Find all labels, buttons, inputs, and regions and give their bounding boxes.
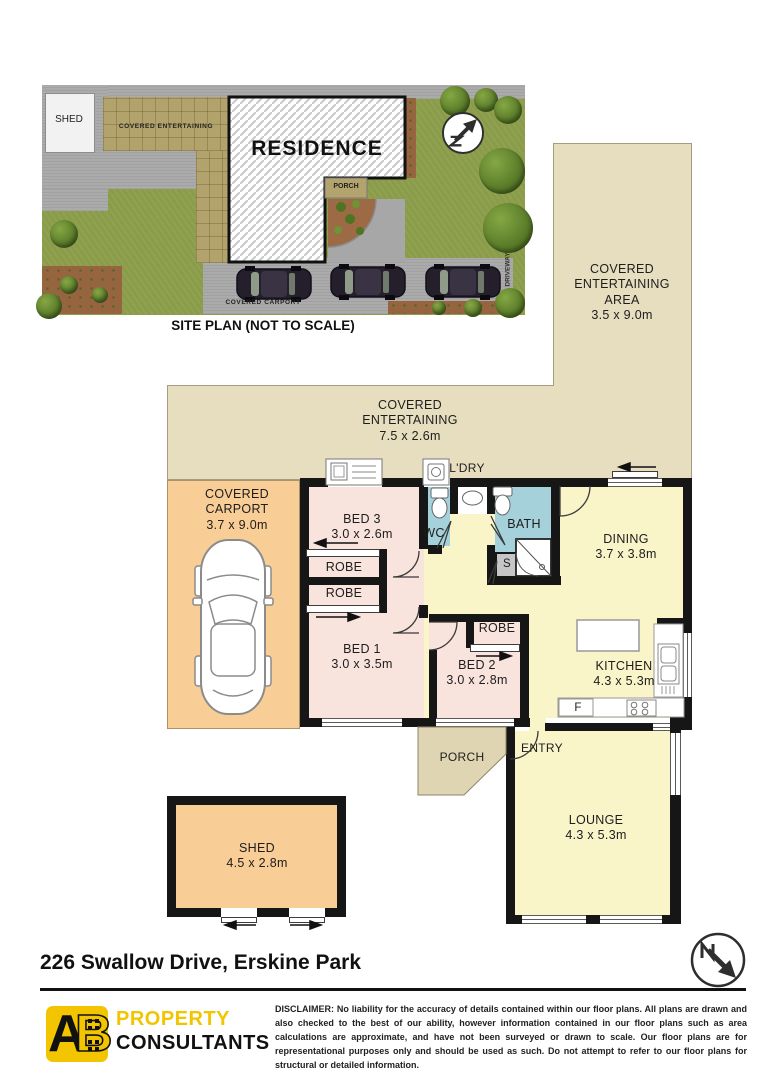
logo-text-property: PROPERTY [116,1008,230,1031]
robe-sliding-door [470,644,520,652]
logo-letter-b: B [75,1004,113,1064]
shed-door-opening [289,908,325,917]
room-label-laundry: L'DRY [437,461,497,476]
wall [545,723,653,731]
tree-icon [494,96,522,124]
wall-opening [424,478,450,487]
wall [487,545,495,578]
basin-nook-floor [458,486,487,514]
site-porch-label: PORCH [322,183,370,190]
room-label-covered-entertaining-area: COVERED ENTERTAINING AREA 3.5 x 9.0m [562,262,682,323]
room-label-store: S [497,557,517,571]
window [600,915,662,924]
room-label-fridge: F [570,701,586,715]
wall [657,618,683,630]
window [436,718,514,727]
disclaimer-text: DISCLAIMER: No liability for the accurac… [275,1002,747,1072]
site-covered-entertaining-label: COVERED ENTERTAINING [106,123,226,130]
wall [487,576,561,585]
room-label-dining: DINING 3.7 x 3.8m [566,532,686,563]
wall [670,716,692,730]
site-garden-strip-right [405,98,416,178]
shed-door-opening [221,908,257,917]
wall [379,549,387,613]
room-label-covered-carport: COVERED CARPORT 3.7 x 9.0m [177,487,297,533]
floorplan-page: SHED COVERED ENTERTAINING RESIDENCE PORC… [0,0,770,1080]
window [683,633,692,697]
logo-text-consultants: CONSULTANTS [116,1032,270,1055]
window [522,915,586,924]
room-label-kitchen: KITCHEN 4.3 x 5.3m [564,659,684,690]
room-label-bed1: BED 1 3.0 x 3.5m [312,642,412,673]
site-shed-label: SHED [44,114,94,125]
room-label-robe-bed2: ROBE [467,621,527,636]
room-label-lounge: LOUNGE 4.3 x 5.3m [536,813,656,844]
robe-sliding-door [306,605,380,613]
site-residence-label: RESIDENCE [237,137,397,161]
shed-sliding-door [221,917,257,923]
tree-icon [432,301,446,315]
wall [487,486,495,514]
footer-divider [40,988,746,991]
wall [300,478,309,727]
window [322,718,402,727]
window [670,733,681,795]
sliding-door [608,478,662,487]
room-label-covered-entertaining: COVERED ENTERTAINING 7.5 x 2.6m [340,398,480,444]
tree-icon [440,86,470,116]
shed-sliding-door [289,917,325,923]
room-label-bath: BATH [494,517,554,532]
wall [304,577,387,585]
property-address: 226 Swallow Drive, Erskine Park [40,951,361,975]
room-label-robe-top: ROBE [309,560,379,575]
entry-passage-floor [529,718,546,732]
room-label-bed2: BED 2 3.0 x 2.8m [427,658,527,689]
room-label-shed: SHED 4.5 x 2.8m [197,841,317,872]
tree-icon [92,287,108,303]
tree-icon [479,148,525,194]
tree-icon [50,220,78,248]
room-label-robe-bottom: ROBE [309,586,379,601]
north-arrow-icon [692,934,744,986]
tree-icon [36,293,62,319]
site-plan-caption: SITE PLAN (NOT TO SCALE) [143,318,383,333]
wall [428,545,442,554]
logo-window-dots [88,1019,92,1023]
room-label-entry: ENTRY [507,741,577,756]
tree-icon [464,299,482,317]
window [653,723,670,731]
site-garden-bed-bottom-right [388,301,510,314]
wall [551,486,560,584]
agency-logo: A B [46,1006,108,1062]
room-label-porch: PORCH [427,750,497,765]
wall-opening [328,478,382,487]
room-label-wc: WC [409,526,459,541]
site-driveway-label: DRIVEWAY [505,240,512,300]
wall [450,486,458,514]
site-covered-carport-label: COVERED CARPORT [203,299,323,306]
robe-sliding-door [306,549,380,557]
sliding-door-track [612,471,658,478]
wall [419,605,428,618]
site-pavers-column [196,151,228,263]
room-label-bed3: BED 3 3.0 x 2.6m [312,512,412,543]
tree-icon [60,276,78,294]
